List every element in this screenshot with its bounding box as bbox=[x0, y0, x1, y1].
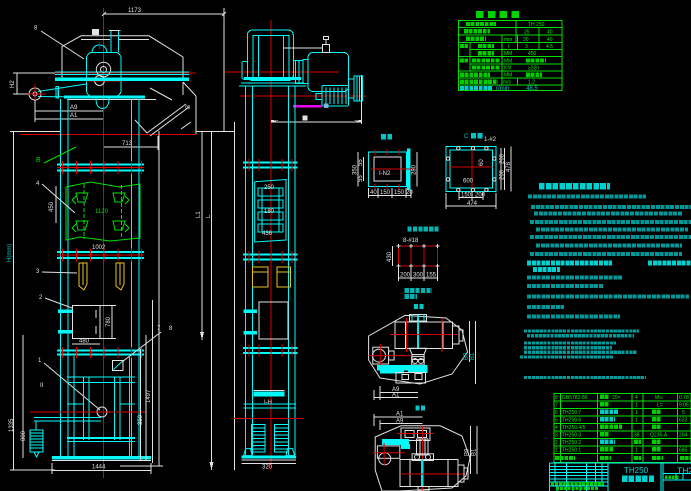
svg-text:1120: 1120 bbox=[95, 209, 109, 215]
svg-text:MM: MM bbox=[504, 51, 512, 57]
svg-text:MM: MM bbox=[504, 73, 512, 79]
svg-text:TH2: TH2 bbox=[677, 466, 691, 476]
svg-text:320: 320 bbox=[262, 465, 273, 471]
svg-text:A9: A9 bbox=[70, 105, 78, 111]
svg-text:30: 30 bbox=[523, 37, 529, 43]
svg-text:40: 40 bbox=[547, 30, 553, 36]
svg-text:155: 155 bbox=[426, 273, 437, 279]
svg-text:204: 204 bbox=[679, 433, 688, 439]
svg-text:48.5: 48.5 bbox=[526, 86, 538, 92]
svg-text:A1: A1 bbox=[70, 113, 78, 119]
svg-text:25: 25 bbox=[524, 30, 530, 36]
svg-text:l: l bbox=[508, 44, 509, 50]
svg-text:478: 478 bbox=[506, 161, 512, 172]
svg-text:I-N2: I-N2 bbox=[379, 171, 391, 177]
svg-text:1173: 1173 bbox=[128, 8, 142, 14]
svg-text:r/min: r/min bbox=[496, 86, 509, 92]
svg-text:200: 200 bbox=[400, 273, 411, 279]
svg-text:KN: KN bbox=[504, 66, 511, 72]
svg-text:8-#18: 8-#18 bbox=[403, 238, 419, 244]
svg-text:200: 200 bbox=[475, 193, 486, 199]
svg-text:L1: L1 bbox=[196, 211, 202, 218]
svg-text:6: 6 bbox=[555, 410, 558, 416]
svg-text:60: 60 bbox=[479, 159, 485, 166]
svg-text:TH250.1: TH250.1 bbox=[562, 448, 581, 454]
svg-text:TH 250: TH 250 bbox=[528, 22, 545, 28]
svg-text:4.5: 4.5 bbox=[546, 44, 553, 50]
svg-text:B1: B1 bbox=[470, 352, 476, 360]
svg-text:1-#2: 1-#2 bbox=[484, 137, 497, 143]
svg-text:436: 436 bbox=[262, 231, 273, 237]
svg-text:150: 150 bbox=[380, 190, 391, 196]
svg-text:280: 280 bbox=[412, 164, 418, 175]
svg-text:780: 780 bbox=[106, 316, 112, 327]
svg-text:1: 1 bbox=[635, 403, 638, 409]
svg-text:5: 5 bbox=[555, 418, 558, 424]
svg-text:1497: 1497 bbox=[146, 389, 152, 403]
svg-text:55: 55 bbox=[358, 159, 364, 166]
svg-text:4: 4 bbox=[635, 395, 638, 401]
svg-text:430: 430 bbox=[387, 251, 393, 262]
svg-text:800: 800 bbox=[21, 430, 27, 441]
svg-text:180: 180 bbox=[264, 209, 275, 215]
svg-text:I-H: I-H bbox=[264, 400, 272, 406]
svg-text:450: 450 bbox=[528, 51, 537, 57]
svg-text:TH250.3: TH250.3 bbox=[562, 433, 581, 439]
svg-text:1335: 1335 bbox=[9, 418, 15, 432]
svg-text:≥320: ≥320 bbox=[528, 66, 539, 72]
svg-text:350: 350 bbox=[138, 414, 144, 425]
svg-text:150: 150 bbox=[461, 193, 472, 199]
svg-text:m/s: m/s bbox=[503, 80, 512, 86]
svg-text:20: 20 bbox=[406, 190, 413, 196]
svg-text:3: 3 bbox=[555, 433, 558, 439]
svg-text:450: 450 bbox=[49, 201, 55, 212]
svg-text:TH250: TH250 bbox=[624, 466, 649, 475]
svg-text:B9: B9 bbox=[465, 448, 471, 456]
svg-text:9.06: 9.06 bbox=[679, 403, 689, 409]
svg-text:40: 40 bbox=[370, 190, 377, 196]
svg-text:300: 300 bbox=[413, 273, 424, 279]
svg-text:685: 685 bbox=[679, 448, 688, 454]
svg-text:B: B bbox=[186, 105, 192, 109]
svg-text:TH250.7: TH250.7 bbox=[562, 410, 581, 416]
svg-text:A1: A1 bbox=[392, 392, 400, 398]
svg-text:H(mm): H(mm) bbox=[7, 244, 13, 262]
svg-text:2: 2 bbox=[555, 440, 558, 446]
svg-text:7: 7 bbox=[555, 403, 558, 409]
svg-text:55: 55 bbox=[358, 175, 364, 182]
svg-text:1: 1 bbox=[635, 410, 638, 416]
svg-text:H2: H2 bbox=[10, 80, 16, 88]
svg-text:TH250.2: TH250.2 bbox=[562, 440, 581, 446]
svg-text:Q235-A: Q235-A bbox=[650, 433, 668, 439]
svg-text:GB5782-86: GB5782-86 bbox=[562, 395, 588, 401]
svg-text:mm: mm bbox=[504, 37, 512, 43]
svg-text:1.2: 1.2 bbox=[528, 80, 535, 86]
svg-text:8: 8 bbox=[555, 395, 558, 401]
svg-text:250: 250 bbox=[264, 185, 275, 191]
svg-text:600: 600 bbox=[463, 179, 474, 185]
svg-text:1: 1 bbox=[635, 418, 638, 424]
svg-text:C: C bbox=[464, 134, 469, 140]
svg-text:20×: 20× bbox=[612, 395, 621, 401]
svg-text:200: 200 bbox=[500, 169, 506, 180]
svg-text:L=: L= bbox=[657, 403, 663, 409]
svg-text:TH250.6: TH250.6 bbox=[562, 418, 581, 424]
svg-text:MM: MM bbox=[504, 59, 512, 65]
svg-text:B9: B9 bbox=[464, 352, 470, 360]
svg-text:B: B bbox=[36, 157, 41, 164]
svg-text:200: 200 bbox=[500, 153, 506, 164]
svg-text:480: 480 bbox=[79, 339, 90, 345]
svg-text:TH250.4/5: TH250.4/5 bbox=[562, 425, 586, 431]
svg-text:4: 4 bbox=[555, 425, 558, 431]
svg-text:632: 632 bbox=[679, 418, 688, 424]
svg-text:1444: 1444 bbox=[92, 465, 106, 471]
svg-text:1: 1 bbox=[555, 448, 558, 454]
svg-text:II: II bbox=[40, 383, 44, 389]
svg-text:474: 474 bbox=[467, 201, 478, 207]
svg-text:5: 5 bbox=[682, 410, 685, 416]
svg-text:1: 1 bbox=[635, 448, 638, 454]
svg-text:150: 150 bbox=[394, 190, 405, 196]
svg-text:3: 3 bbox=[525, 44, 528, 50]
svg-text:A1: A1 bbox=[396, 412, 404, 418]
svg-text:A9: A9 bbox=[396, 418, 404, 424]
svg-text:38: 38 bbox=[634, 433, 640, 439]
svg-text:0.78: 0.78 bbox=[679, 395, 689, 401]
svg-text:B1: B1 bbox=[472, 448, 478, 456]
svg-text:40: 40 bbox=[547, 37, 553, 43]
